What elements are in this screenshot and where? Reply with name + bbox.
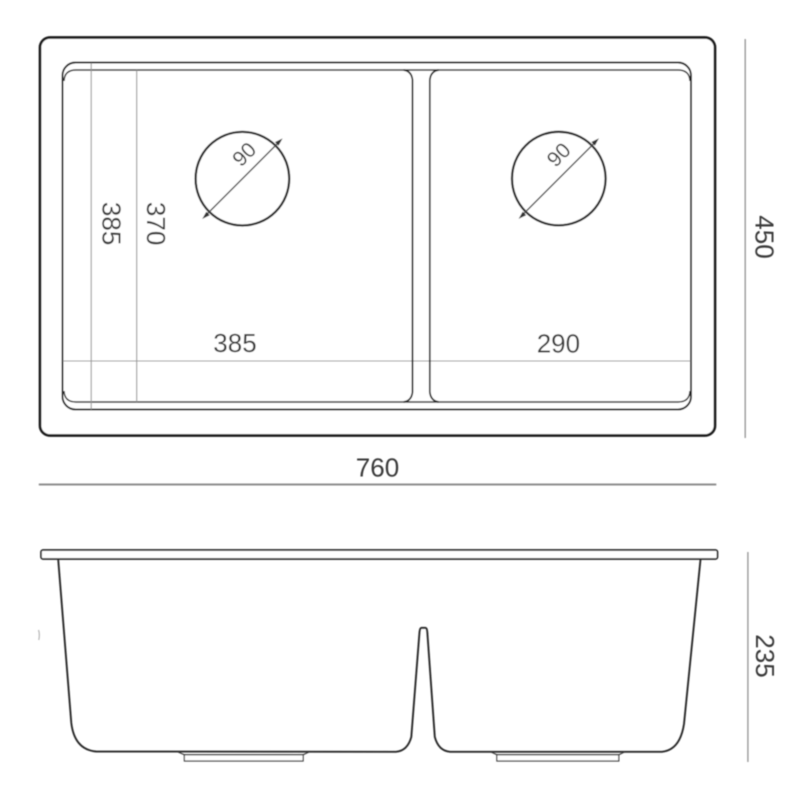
- svg-text:385: 385: [213, 328, 256, 358]
- svg-text:450: 450: [750, 215, 780, 258]
- svg-text:760: 760: [356, 453, 399, 483]
- svg-text:235: 235: [750, 634, 780, 677]
- svg-text:370: 370: [141, 202, 171, 245]
- svg-text:385: 385: [97, 202, 127, 245]
- svg-text:290: 290: [537, 329, 580, 359]
